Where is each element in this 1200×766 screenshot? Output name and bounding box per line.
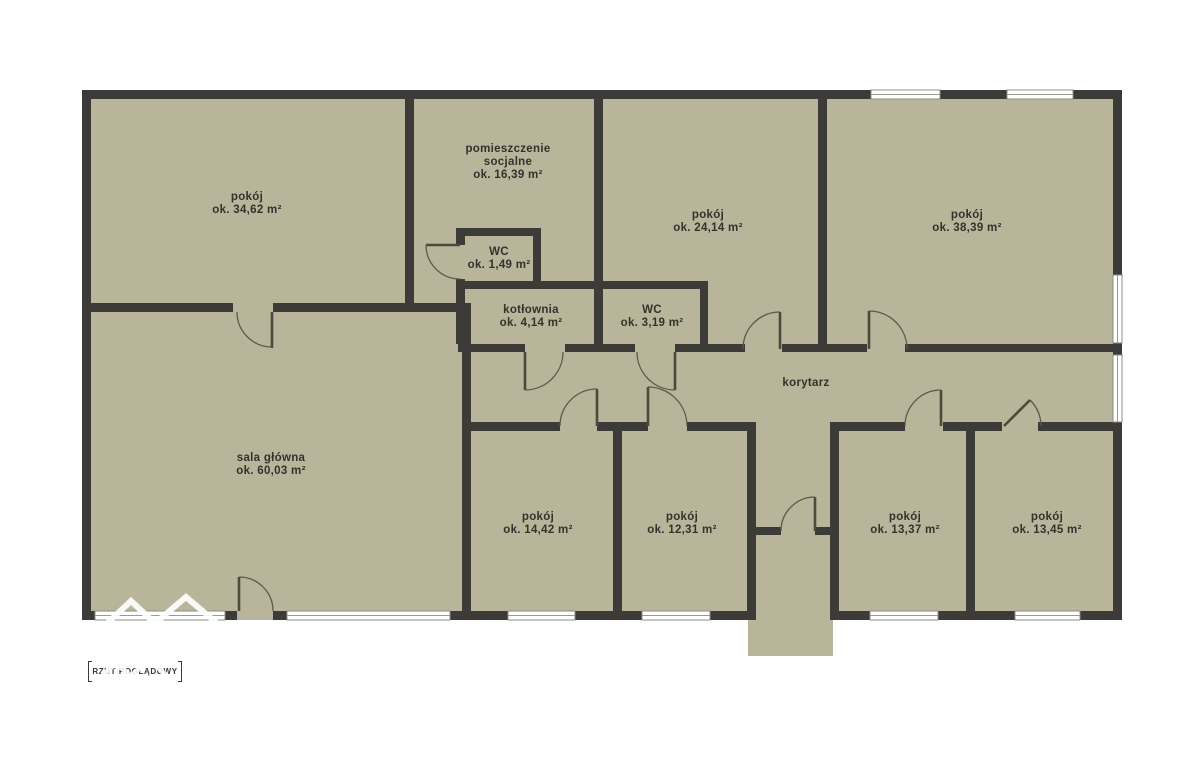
window xyxy=(870,611,938,620)
window xyxy=(642,611,710,620)
floorplan-canvas: pokójok. 34,62 m²pomieszczeniesocjalneok… xyxy=(0,0,1200,766)
window xyxy=(1113,275,1122,343)
plan-type-badge: RZUT POGLĄDOWY xyxy=(88,661,182,682)
window xyxy=(1113,355,1122,422)
room-label-sala-glowna: sala głównaok. 60,03 m² xyxy=(236,452,305,477)
window xyxy=(871,90,940,99)
window xyxy=(1015,611,1080,620)
room-label-korytarz: korytarz xyxy=(782,377,829,389)
window xyxy=(1007,90,1073,99)
badge-right-bracket xyxy=(178,661,182,682)
floor-plan-svg: pokójok. 34,62 m²pomieszczeniesocjalneok… xyxy=(0,0,1200,766)
badge-label: RZUT POGLĄDOWY xyxy=(92,661,177,682)
entrance-porch xyxy=(748,611,833,656)
room-label-kotlownia: kotłowniaok. 4,14 m² xyxy=(500,304,563,329)
window xyxy=(287,611,450,620)
window xyxy=(508,611,575,620)
